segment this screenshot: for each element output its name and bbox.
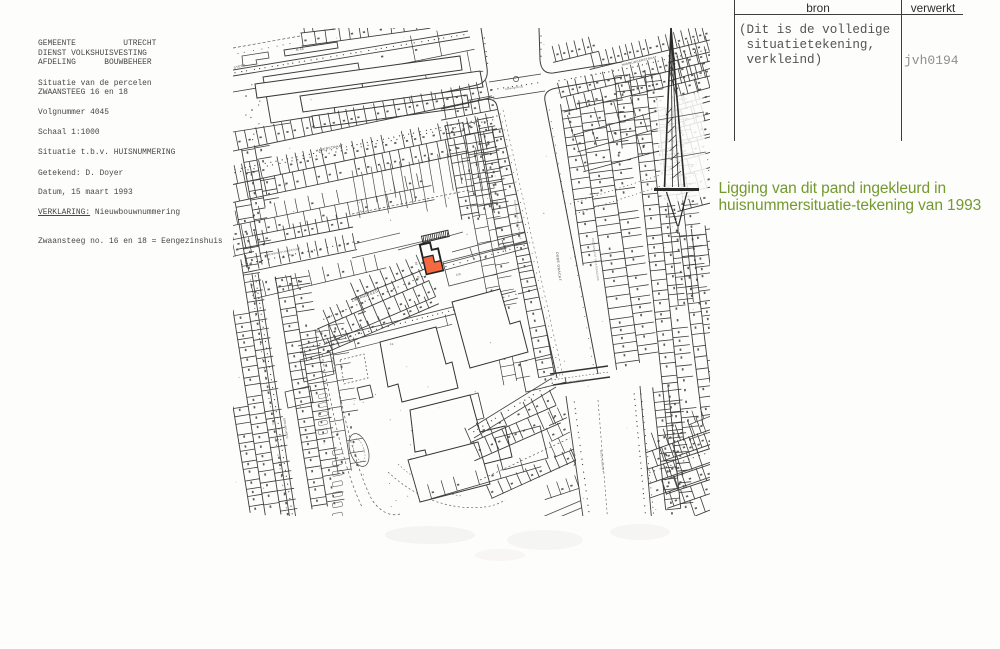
svg-text:M 66: M 66 (296, 47, 305, 52)
svg-text:229: 229 (455, 272, 461, 277)
svg-text:JACOBIGASTHUISSTEEG: JACOBIGASTHUISSTEEG (266, 247, 301, 257)
svg-text:VOLLERSBRUG: VOLLERSBRUG (568, 378, 588, 384)
svg-text:11.: 11. (390, 342, 395, 346)
svg-text:18: 18 (414, 261, 419, 265)
svg-text:HAMBURGERSTRAAT: HAMBURGERSTRAAT (621, 55, 657, 67)
svg-text:OUDEGRACHT TOLSTEEGZIJDE: OUDEGRACHT TOLSTEEGZIJDE (591, 238, 599, 282)
svg-text:16: 16 (416, 275, 421, 279)
svg-text:HAVERSTRAAT: HAVERSTRAAT (315, 144, 343, 153)
